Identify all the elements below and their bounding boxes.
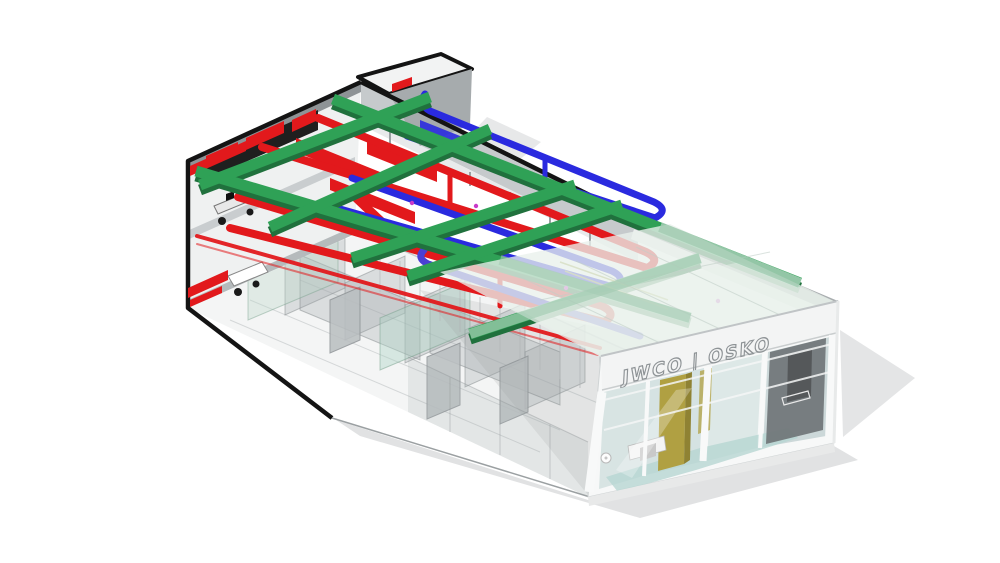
office-chair — [234, 288, 242, 296]
door-handle-dot — [605, 457, 608, 460]
dark-room-shelf — [787, 350, 812, 402]
mullion-door — [703, 367, 708, 461]
fixture-dot — [474, 204, 478, 208]
building-isometric-view: JWCO | OSKO — [0, 0, 1000, 563]
fixture-dot — [410, 201, 414, 205]
office-chair — [253, 281, 260, 288]
pier-right — [829, 335, 833, 440]
shadow-right — [840, 330, 915, 437]
bim-render-canvas: JWCO | OSKO — [0, 0, 1000, 563]
office-chair — [247, 209, 254, 216]
office-chair — [218, 217, 226, 225]
